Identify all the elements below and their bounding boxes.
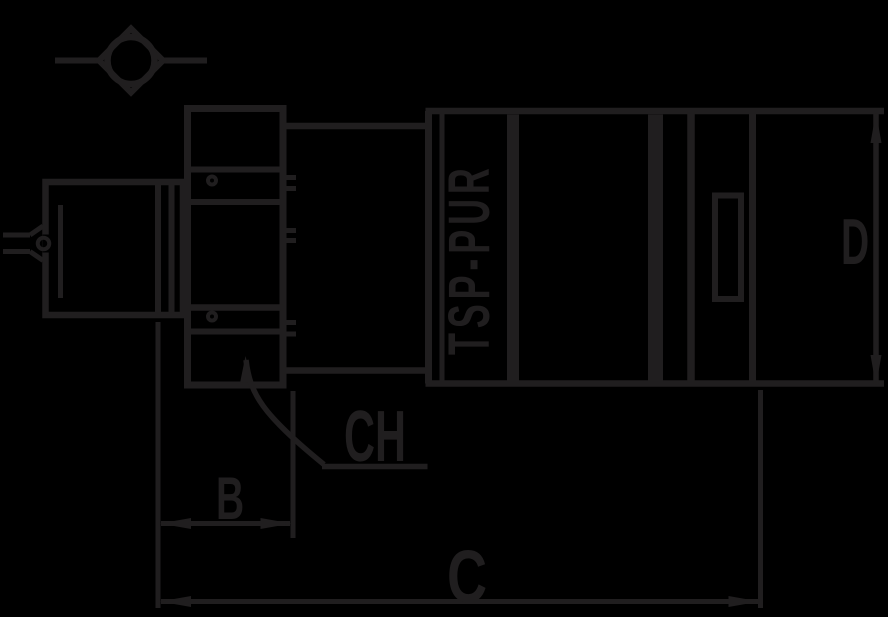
svg-text:C: C xyxy=(447,535,487,617)
svg-text:TSP-PUR: TSP-PUR xyxy=(437,163,502,355)
svg-text:CH: CH xyxy=(344,396,406,477)
svg-text:B: B xyxy=(216,464,244,532)
svg-text:D: D xyxy=(841,206,869,279)
